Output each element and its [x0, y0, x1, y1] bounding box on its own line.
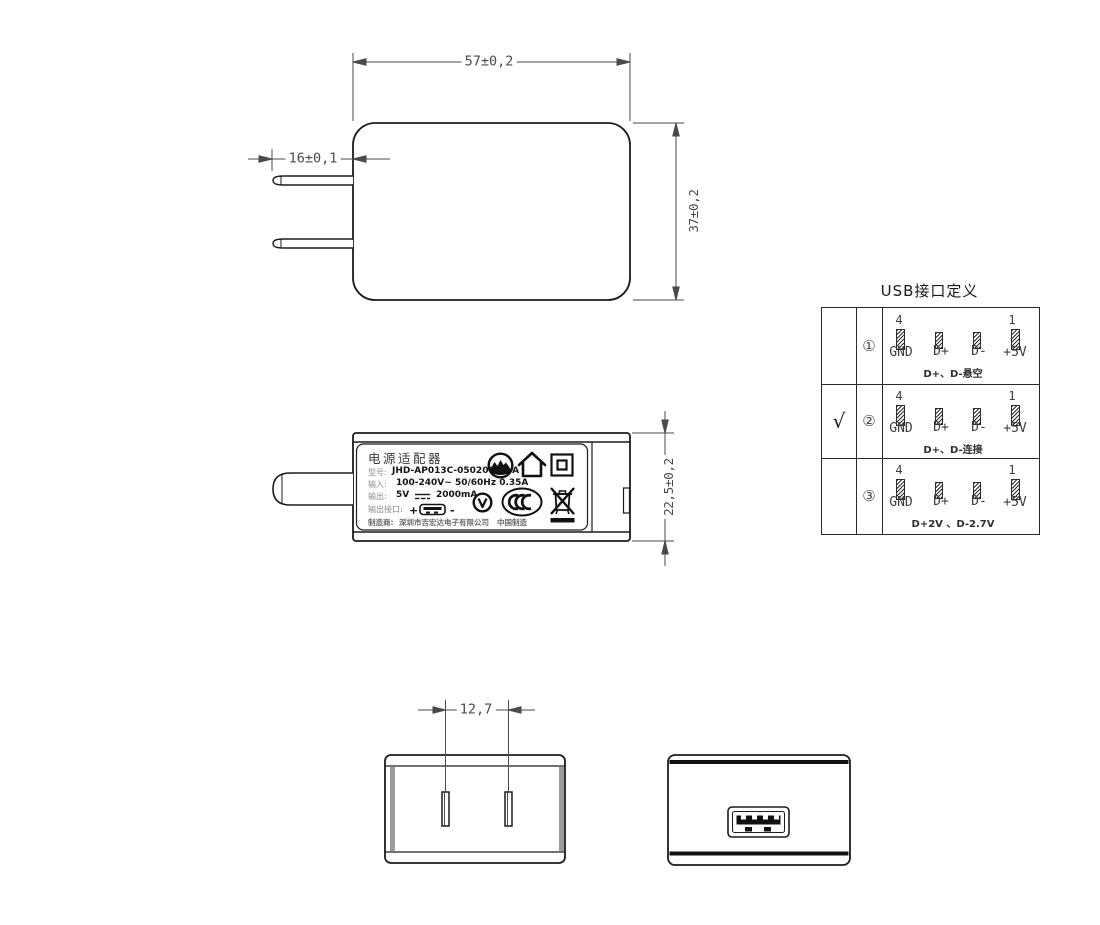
row2-check: √: [822, 384, 856, 458]
altitude-limit-icon: [487, 452, 514, 479]
row3-check: [822, 458, 856, 534]
row1-note: D+、D-悬空: [883, 365, 1023, 380]
front-view-outline: [273, 123, 630, 300]
row3-pin1-number: 1: [1004, 463, 1020, 477]
row2-note: D+、D-连接: [883, 441, 1023, 456]
adapter-technical-drawing: 57±0,2 16±0,1 37±0,2 22,5±0,2 12,7 电源适配器…: [0, 0, 1100, 925]
side-thickness-dim-label: 22,5±0,2: [662, 455, 676, 519]
row1-pin4-number: 4: [891, 313, 907, 327]
v-check-icon: [472, 492, 493, 513]
label-maker-key: 制造商:: [368, 517, 394, 528]
front-width-dim-label: 57±0,2: [462, 55, 517, 70]
label-port-key: 输出接口:: [368, 504, 403, 515]
row2-pin-gnd: GND: [879, 421, 923, 436]
row2-pin-5v: +5V: [993, 421, 1037, 436]
label-port-plus: +: [409, 504, 418, 517]
front-height-dim-label: 37±0,2: [687, 186, 701, 235]
row2-pin4-number: 4: [891, 389, 907, 403]
row1-pin-gnd: GND: [879, 345, 923, 360]
usb-port-icon: [419, 503, 447, 516]
label-made-in: 中国制造: [497, 517, 527, 528]
weee-bin-icon: [549, 485, 576, 525]
label-output-key: 输出:: [368, 491, 387, 502]
dc-symbol-icon: [414, 492, 432, 501]
front-prong-dim-label: 16±0,1: [286, 152, 341, 167]
row3-pin-5v: +5V: [993, 495, 1037, 510]
class-ii-icon: [550, 453, 574, 477]
usb-pinout-table: ① 4 1 GND D+ D- +5V D+、D-悬空 √ ② 4 1 GND …: [821, 307, 1040, 535]
row3-pin-gnd: GND: [879, 495, 923, 510]
row3-pin4-number: 4: [891, 463, 907, 477]
usb-face-view-outline: [668, 755, 850, 865]
label-model-key: 型号:: [368, 467, 387, 478]
label-product-name: 电源适配器: [368, 448, 443, 467]
row2-pin1-number: 1: [1004, 389, 1020, 403]
label-port-minus: -: [450, 504, 455, 517]
row1-pin-5v: +5V: [993, 345, 1037, 360]
row1-pin1-number: 1: [1004, 313, 1020, 327]
plug-face-view-outline: [385, 755, 565, 863]
row3-note: D+2V 、D-2.7V: [883, 515, 1023, 530]
indoor-use-icon: [517, 450, 547, 479]
row1-check: [822, 308, 856, 384]
label-maker-value: 深圳市吉宏达电子有限公司: [399, 517, 489, 528]
label-output-voltage: 5V: [396, 490, 409, 500]
label-input-key: 输入:: [368, 479, 387, 490]
usb-table-title: USB接口定义: [821, 280, 1038, 301]
prong-pitch-dim-label: 12,7: [457, 703, 496, 718]
ccc-mark-icon: [501, 487, 543, 517]
